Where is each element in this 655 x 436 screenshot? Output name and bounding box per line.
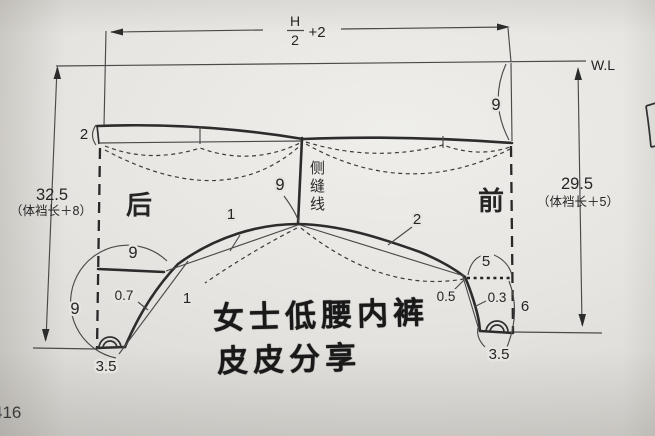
arrow-down-icon: [42, 329, 50, 342]
side-seam-name-label: 侧缝线: [306, 160, 327, 214]
front-leg-offset-label: 0.5: [437, 289, 456, 304]
back-piece-label: 后: [126, 190, 152, 220]
arch-dashed-left: [205, 228, 297, 283]
extension-line-left: [104, 31, 106, 126]
back-length-formula: （体裆长＋8）: [10, 203, 92, 218]
arch-chord-right: [300, 225, 464, 276]
side-seam-depth-arc: [284, 196, 299, 222]
front-waist-drop-label: 9: [491, 96, 500, 114]
side-seam-depth-label: 9: [275, 176, 284, 194]
top-width-dimension: H 2 +2: [104, 13, 511, 126]
back-length-dimension: 32.5 （体裆长＋8）: [10, 66, 97, 349]
arch-dashed-right: [301, 228, 464, 281]
back-waist-left-edge: [97, 125, 99, 144]
front-curve-offset-label: 0.3: [488, 290, 507, 305]
front-crotch-width-label: 3.5: [489, 346, 510, 363]
back-leg-drop-label: 1: [183, 290, 191, 307]
watermark-line2: 皮皮分享: [216, 332, 361, 381]
back-baseline: [33, 348, 97, 349]
page-number: 416: [0, 403, 21, 423]
front-scallop-deep: [306, 144, 510, 174]
back-length-value: 32.5: [36, 186, 68, 204]
front-length-value: 29.5: [561, 175, 593, 193]
front-leg-curve: [465, 277, 480, 331]
front-baseline: [512, 332, 602, 333]
formula-denominator: 2: [291, 32, 299, 48]
watermark-line1: 女士低腰内裤: [212, 287, 429, 338]
back-scallop-shallow: [105, 142, 302, 156]
waistline-construction: W.L: [56, 57, 615, 73]
waistline: [56, 61, 586, 66]
front-scallop-shallow: [306, 142, 510, 153]
front-waist-drop: 9: [491, 63, 512, 141]
side-seam-line: [298, 138, 302, 224]
front-center-line: [511, 146, 513, 332]
front-tab-depth-label: 6: [521, 298, 529, 315]
extension-line-right: [508, 28, 511, 62]
arch-offset-left-label: 1: [227, 206, 235, 223]
back-leg-chord: [119, 261, 188, 354]
front-center-extension: [511, 63, 512, 141]
arrow-up-icon: [575, 67, 583, 80]
arrow-left-icon: [110, 29, 123, 36]
back-leg-line: [98, 269, 164, 272]
arrow-down-icon: [579, 314, 587, 327]
front-tab-width-label: 5: [482, 253, 490, 270]
formula-suffix: +2: [308, 24, 325, 41]
book-page-photo: H 2 +2 W.L 32.5 （体裆长＋8） 29.5 （体裆长＋5）: [0, 0, 655, 436]
band-bracket-arc: [93, 125, 97, 145]
front-waist-edge: [303, 138, 512, 143]
front-length-formula: （体裆长＋5）: [537, 194, 619, 209]
front-leg-chord: [463, 277, 479, 330]
arch-offset-right-label: 2: [413, 211, 421, 228]
offset-tick-left: [230, 235, 240, 251]
offset-tick-right: [388, 227, 412, 245]
back-leg-width-label: 9: [128, 244, 137, 262]
adjacent-figure-fragment: [646, 103, 655, 147]
back-crotch-depth-label: 9: [70, 300, 79, 318]
back-waist-level-line: [100, 141, 302, 143]
side-seam: 9: [275, 138, 302, 224]
formula-numerator: H: [290, 13, 300, 29]
arrow-up-icon: [54, 66, 62, 79]
front-piece-label: 前: [478, 186, 504, 216]
back-crotch-detail: 9 9 1 0.7 3.5: [70, 244, 191, 375]
band-height-label: 2: [80, 126, 88, 143]
waistline-label: W.L: [591, 57, 615, 73]
front-crotch-detail: 5 6 0.5 0.3 3.5: [437, 253, 530, 363]
back-center-line: [97, 148, 100, 349]
front-length-dimension: 29.5 （体裆长＋5）: [512, 67, 619, 333]
back-crotch-width-label: 3.5: [96, 358, 117, 375]
back-curve-offset-label: 0.7: [115, 288, 134, 303]
